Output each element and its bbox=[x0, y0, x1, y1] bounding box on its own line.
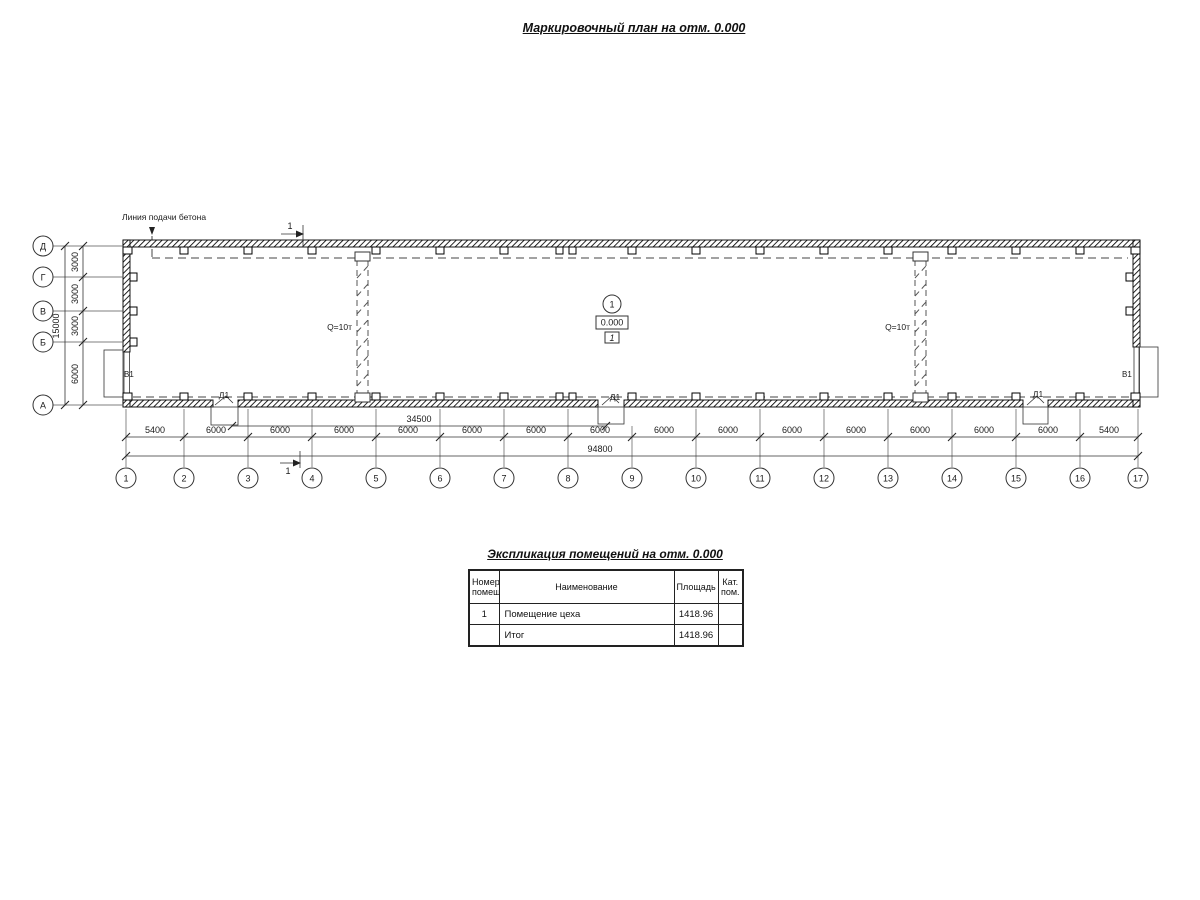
axis-letter: Г bbox=[41, 273, 46, 283]
axis-bubbles-left: Д Г В Б А bbox=[33, 236, 53, 415]
axis-number: 3 bbox=[245, 474, 250, 484]
axis-number: 17 bbox=[1133, 474, 1143, 484]
door-3-label: Д1 bbox=[1033, 389, 1044, 399]
axis-extension-lines-bottom bbox=[126, 409, 1138, 467]
dimension-span-value: 34500 bbox=[406, 414, 431, 424]
axis-letter: А bbox=[40, 401, 46, 411]
bay-dim: 6000 bbox=[334, 425, 354, 435]
concrete-feed-line bbox=[133, 236, 1131, 397]
bay-dim: 6000 bbox=[398, 425, 418, 435]
room-schedule: Экспликация помещений на отм. 0.000 Номе… bbox=[468, 547, 742, 647]
dimension-left-segments-line bbox=[79, 242, 87, 409]
cell-room-name: Помещение цеха bbox=[499, 604, 674, 625]
left-dim: 3000 bbox=[70, 252, 80, 272]
axis-number: 12 bbox=[819, 474, 829, 484]
door-1 bbox=[211, 396, 238, 425]
section-mark-top-label: 1 bbox=[287, 221, 292, 231]
schedule-table: Номер помещ. Наименование Площадь Кат. п… bbox=[468, 569, 744, 647]
dimension-left-segment-values: 3000 3000 3000 6000 bbox=[70, 252, 80, 384]
cell-total-area: 1418.96 bbox=[674, 625, 718, 647]
axis-bubbles-bottom: 1 2 3 4 5 6 7 8 9 10 11 12 13 14 15 16 1… bbox=[116, 468, 1148, 488]
axis-number: 1 bbox=[123, 474, 128, 484]
axis-number: 7 bbox=[501, 474, 506, 484]
bay-dim: 6000 bbox=[526, 425, 546, 435]
axis-number: 16 bbox=[1075, 474, 1085, 484]
cell-total-label: Итог bbox=[499, 625, 674, 647]
axis-number: 2 bbox=[181, 474, 186, 484]
crane-left-capacity-label: Q=10т bbox=[327, 322, 352, 332]
axis-letter: В bbox=[40, 307, 46, 317]
cell-room-category bbox=[718, 604, 743, 625]
crane-left bbox=[355, 252, 370, 402]
axis-number: 10 bbox=[691, 474, 701, 484]
bay-dim: 6000 bbox=[1038, 425, 1058, 435]
bay-dim: 6000 bbox=[846, 425, 866, 435]
axis-number: 15 bbox=[1011, 474, 1021, 484]
cell-total-category bbox=[718, 625, 743, 647]
schedule-header-row: Номер помещ. Наименование Площадь Кат. п… bbox=[469, 570, 743, 604]
door-1-label: Д1 bbox=[219, 390, 230, 400]
cell-room-number: 1 bbox=[469, 604, 499, 625]
room-marker-number: 1 bbox=[609, 333, 614, 343]
axis-number: 9 bbox=[629, 474, 634, 484]
bay-dim: 6000 bbox=[206, 425, 226, 435]
bay-dim: 6000 bbox=[590, 425, 610, 435]
cell-total-number bbox=[469, 625, 499, 647]
col-header-area: Площадь bbox=[674, 570, 718, 604]
axis-number: 6 bbox=[437, 474, 442, 484]
bay-dim: 5400 bbox=[1099, 425, 1119, 435]
room-marker-axis: 1 bbox=[609, 300, 614, 310]
crane-right-capacity-label: Q=10т bbox=[885, 322, 910, 332]
axis-number: 13 bbox=[883, 474, 893, 484]
bay-dim: 6000 bbox=[718, 425, 738, 435]
left-dim: 6000 bbox=[70, 364, 80, 384]
door-2-label: Д1 bbox=[610, 392, 621, 402]
bay-dim: 5400 bbox=[145, 425, 165, 435]
axis-letter: Б bbox=[40, 338, 46, 348]
schedule-title: Экспликация помещений на отм. 0.000 bbox=[468, 547, 742, 561]
axis-extension-lines-left bbox=[53, 246, 123, 405]
left-dim: 3000 bbox=[70, 284, 80, 304]
floor-plan-drawing: Линия подачи бетона В1 В1 bbox=[0, 0, 1200, 900]
room-marker-elevation: 0.000 bbox=[601, 318, 624, 328]
dimension-left-total-line bbox=[61, 242, 69, 409]
gate-label-left: В1 bbox=[124, 370, 134, 379]
section-mark-bottom-label: 1 bbox=[285, 466, 290, 476]
axis-letter: Д bbox=[40, 242, 46, 252]
dimension-left-total-value: 15000 bbox=[51, 313, 61, 338]
col-header-room-number: Номер помещ. bbox=[469, 570, 499, 604]
col-header-name: Наименование bbox=[499, 570, 674, 604]
axis-number: 8 bbox=[565, 474, 570, 484]
bay-dim: 6000 bbox=[974, 425, 994, 435]
gate-annex-right bbox=[1139, 347, 1158, 397]
door-3 bbox=[1023, 396, 1048, 424]
gate-label-right: В1 bbox=[1122, 370, 1132, 379]
bay-dim: 6000 bbox=[654, 425, 674, 435]
crane-right bbox=[913, 252, 928, 402]
dimension-total-value: 94800 bbox=[587, 444, 612, 454]
concrete-line-arrow-icon bbox=[149, 227, 155, 235]
bay-dim: 6000 bbox=[462, 425, 482, 435]
bay-dim: 6000 bbox=[270, 425, 290, 435]
gate-annex-left bbox=[104, 350, 123, 397]
schedule-row: 1 Помещение цеха 1418.96 bbox=[469, 604, 743, 625]
schedule-total-row: Итог 1418.96 bbox=[469, 625, 743, 647]
axis-number: 14 bbox=[947, 474, 957, 484]
drawing-sheet: Маркировочный план на отм. 0.000 Линия п… bbox=[0, 0, 1200, 900]
concrete-line-label: Линия подачи бетона bbox=[122, 212, 206, 222]
cell-room-area: 1418.96 bbox=[674, 604, 718, 625]
bay-dim: 6000 bbox=[910, 425, 930, 435]
building-walls bbox=[123, 240, 1140, 407]
axis-number: 5 bbox=[373, 474, 378, 484]
axis-number: 11 bbox=[755, 474, 764, 484]
axis-number: 4 bbox=[309, 474, 314, 484]
left-dim: 3000 bbox=[70, 316, 80, 336]
bay-dim: 6000 bbox=[782, 425, 802, 435]
col-header-category: Кат. пом. bbox=[718, 570, 743, 604]
wall-pilasters bbox=[123, 247, 1140, 400]
